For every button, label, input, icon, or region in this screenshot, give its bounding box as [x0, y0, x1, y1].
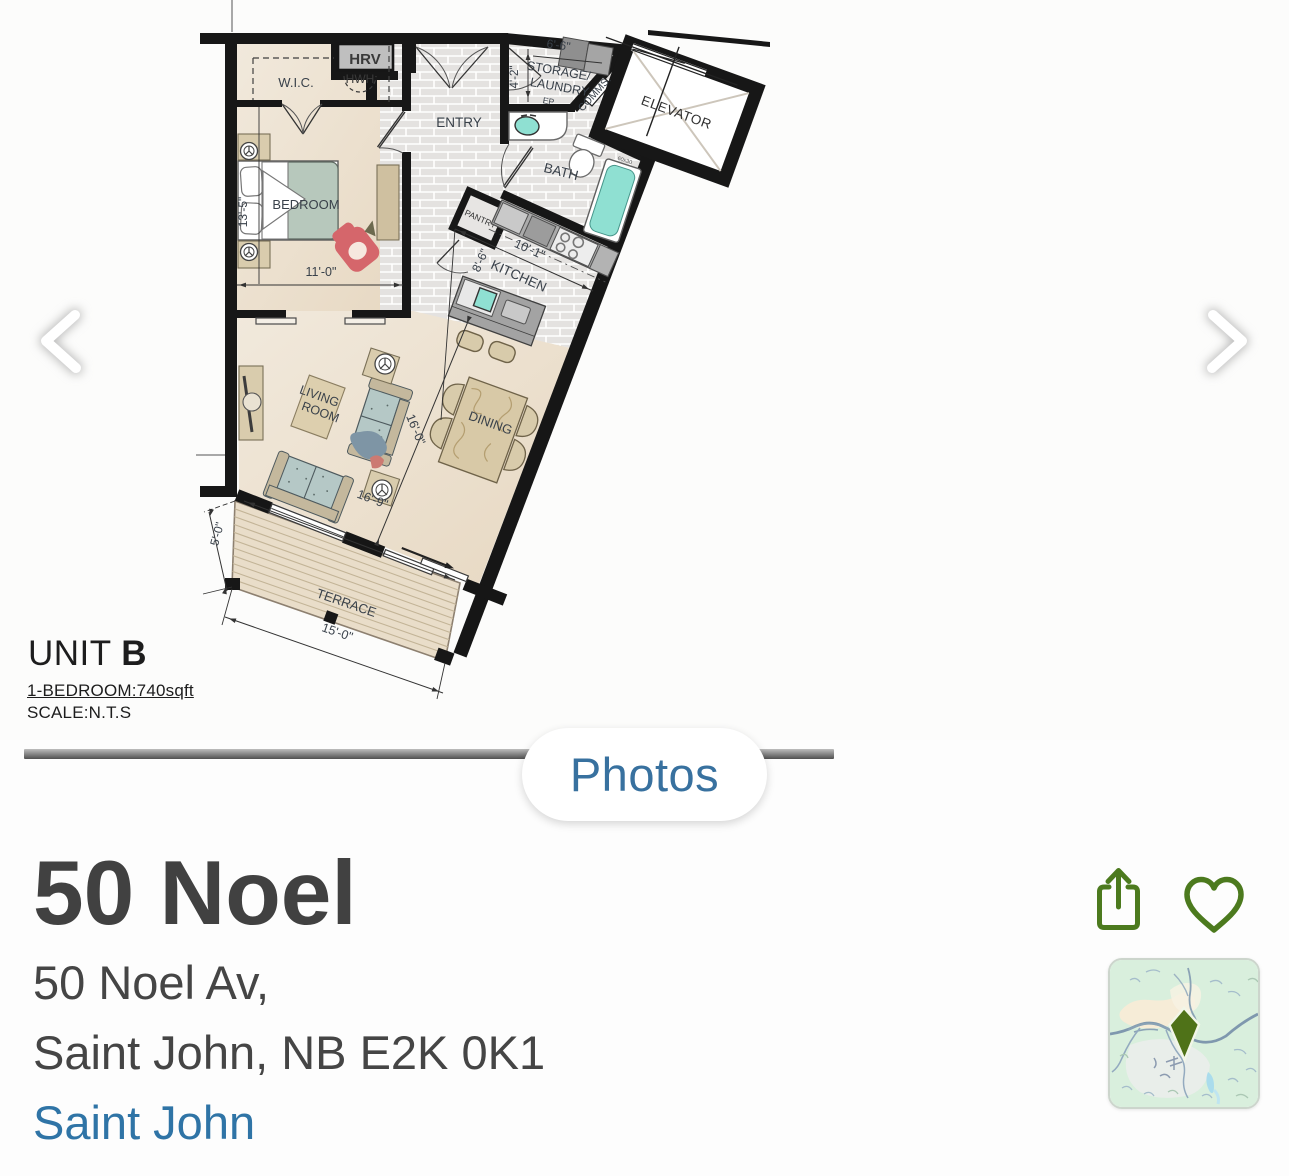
svg-text:11'-0": 11'-0": [306, 265, 337, 279]
svg-text:HWH: HWH: [346, 72, 375, 86]
svg-text:BEDROOM: BEDROOM: [272, 197, 339, 212]
svg-text:W.I.C.: W.I.C.: [278, 75, 313, 90]
svg-text:ENTRY: ENTRY: [436, 115, 482, 130]
svg-text:4'-2": 4'-2": [509, 66, 521, 89]
svg-text:13'-5": 13'-5": [236, 197, 250, 228]
svg-text:HRV: HRV: [349, 51, 380, 68]
svg-text:EP: EP: [542, 95, 555, 107]
